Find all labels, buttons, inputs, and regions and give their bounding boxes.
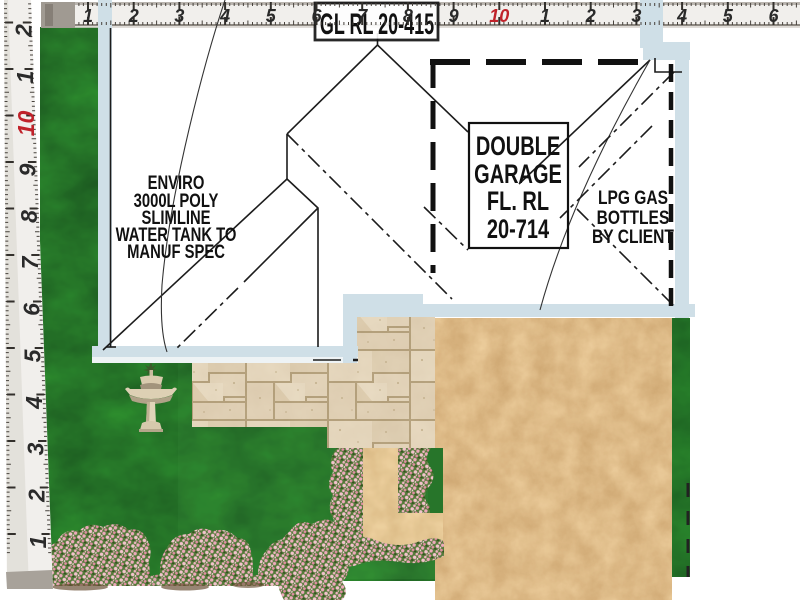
svg-text:2: 2: [585, 6, 596, 26]
svg-text:2: 2: [11, 24, 37, 38]
svg-text:1: 1: [83, 6, 93, 26]
svg-text:2: 2: [24, 489, 50, 503]
svg-text:3: 3: [22, 442, 48, 455]
svg-text:1: 1: [540, 6, 550, 26]
svg-text:5: 5: [20, 348, 46, 362]
svg-text:5: 5: [266, 6, 277, 26]
svg-text:6: 6: [311, 6, 322, 26]
svg-text:4: 4: [676, 6, 687, 26]
svg-text:1: 1: [25, 536, 51, 549]
svg-text:3: 3: [174, 6, 184, 26]
svg-text:9: 9: [449, 6, 459, 26]
svg-text:10: 10: [13, 111, 39, 137]
svg-text:10: 10: [489, 6, 509, 26]
svg-text:DOUBLE: DOUBLE: [476, 131, 560, 162]
svg-text:BY CLIENT: BY CLIENT: [592, 226, 674, 248]
svg-text:3: 3: [631, 6, 641, 26]
svg-text:8: 8: [403, 6, 413, 26]
svg-text:20-714: 20-714: [487, 214, 550, 245]
svg-text:FL. RL: FL. RL: [487, 186, 549, 217]
svg-text:8: 8: [16, 210, 42, 223]
svg-text:4: 4: [219, 6, 230, 26]
svg-text:LPG GAS: LPG GAS: [598, 187, 668, 209]
svg-text:6: 6: [18, 303, 44, 316]
svg-text:7: 7: [357, 6, 368, 26]
svg-text:5: 5: [723, 6, 734, 26]
svg-text:1: 1: [12, 71, 38, 84]
svg-text:7: 7: [17, 255, 43, 269]
svg-text:2: 2: [128, 6, 139, 26]
svg-text:MANUF SPEC: MANUF SPEC: [127, 241, 225, 262]
svg-text:6: 6: [768, 6, 779, 26]
svg-text:9: 9: [15, 163, 41, 176]
svg-text:4: 4: [21, 396, 47, 410]
